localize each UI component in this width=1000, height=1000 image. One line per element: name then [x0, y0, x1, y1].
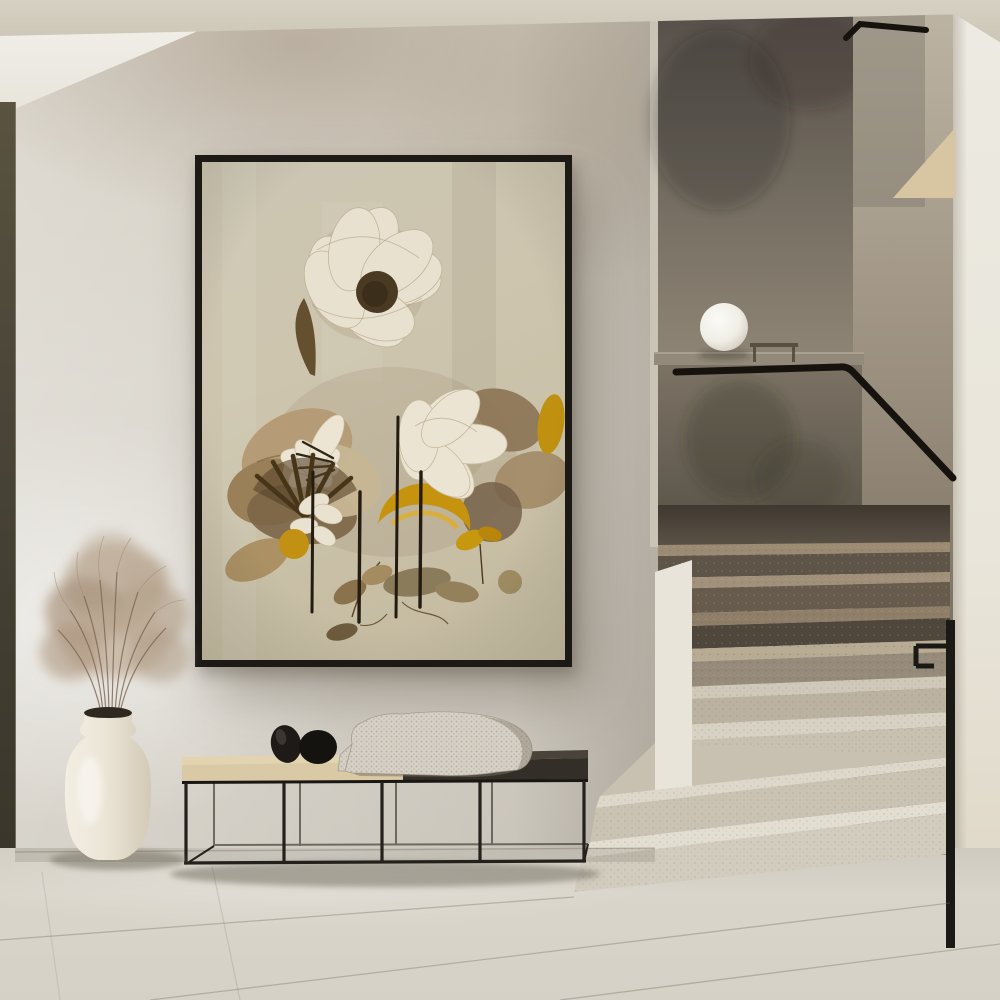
upper-steps	[658, 542, 950, 688]
stool-silhouette	[750, 343, 798, 362]
stair-shadow-band	[658, 505, 950, 545]
upper-floor-handrail	[846, 24, 926, 38]
stair-ledge	[654, 352, 864, 365]
stair-ceiling-wedge	[893, 128, 955, 198]
stair-half-wall	[658, 365, 862, 515]
globe-lamp	[700, 303, 748, 351]
stair-handrail	[676, 367, 953, 478]
left-door-frame	[0, 102, 16, 850]
stair-right-wall	[853, 12, 953, 855]
interior-scene	[0, 0, 1000, 1000]
art-canvas	[202, 162, 565, 660]
handrail	[676, 24, 953, 478]
tile-floor	[0, 848, 1000, 1000]
stair-stringer-wall	[655, 560, 692, 860]
stair-pillar	[853, 12, 925, 207]
stairwell-dark-panel	[658, 12, 853, 365]
framed-artwork	[195, 155, 572, 667]
